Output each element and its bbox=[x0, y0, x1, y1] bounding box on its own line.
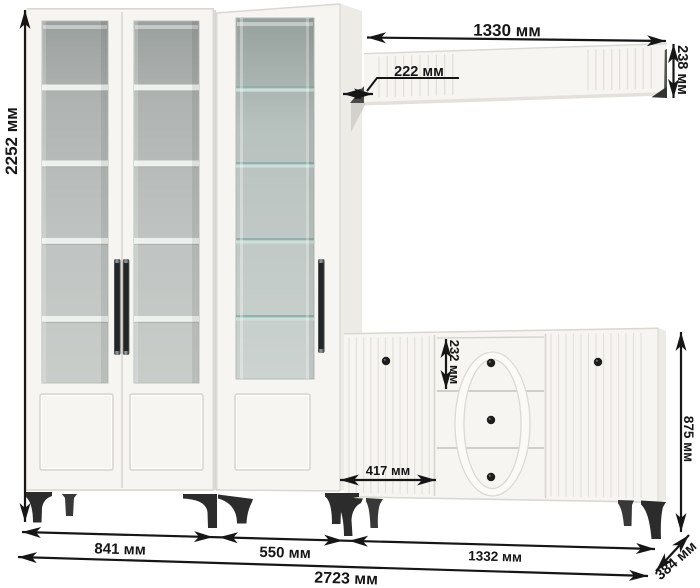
svg-text:222 мм: 222 мм bbox=[394, 64, 444, 80]
svg-text:417 мм: 417 мм bbox=[366, 463, 411, 478]
svg-text:2252 мм: 2252 мм bbox=[2, 107, 21, 175]
svg-text:1332 мм: 1332 мм bbox=[468, 548, 522, 564]
svg-text:2723 мм: 2723 мм bbox=[314, 570, 378, 588]
svg-text:1330 мм: 1330 мм bbox=[473, 21, 541, 41]
svg-text:841 мм: 841 мм bbox=[94, 540, 146, 558]
svg-text:875 мм: 875 мм bbox=[681, 416, 696, 462]
svg-text:238 мм: 238 мм bbox=[674, 45, 690, 95]
svg-text:550 мм: 550 мм bbox=[259, 544, 311, 562]
svg-text:232 мм: 232 мм bbox=[447, 340, 462, 385]
